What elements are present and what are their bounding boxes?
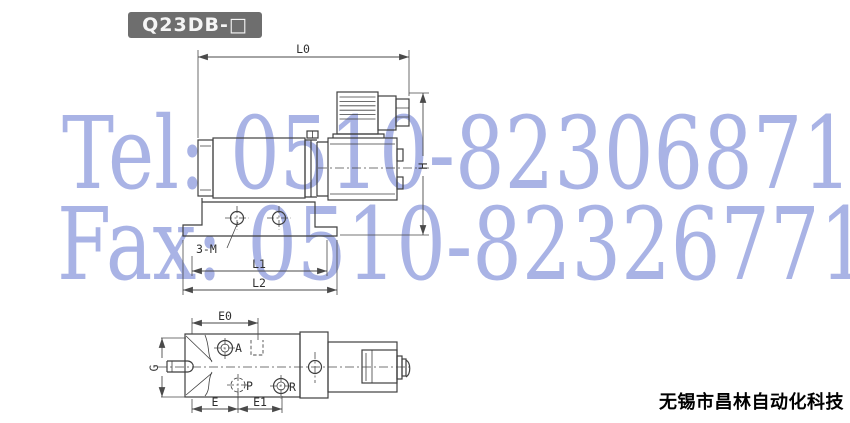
dim-label-l0: L0 [296,42,310,56]
e0-dimension: E0 [192,309,258,340]
mounting-hole-callout: 3-M [196,222,238,256]
e-dimension: E [192,392,238,413]
dim-label-l2: L2 [252,276,266,290]
product-model-label: Q23DB-□ [142,14,248,36]
dim-label-e0: E0 [218,309,232,323]
bottom-view-drawing: A P R [147,309,412,413]
dim-label-h: H [416,162,430,169]
flange [300,332,328,398]
valve-body [198,138,305,198]
screenshot-root: Tel: 0510-82306871 Fax: 0510-82326771 [0,0,850,423]
port-label-p: P [246,379,253,393]
electrical-connector [333,92,409,138]
product-model-badge: Q23DB-□ [128,12,262,38]
e1-dimension: E1 [238,395,282,413]
valve-technical-drawing: 3-M L0 H L1 [0,0,850,423]
dim-label-e1: E1 [253,395,267,409]
body-top-view [185,334,300,397]
mounting-holes [225,206,291,230]
dim-label-e: E [212,395,219,409]
armature-adapter [305,131,328,197]
port-r: R [270,375,296,399]
dim-label-l1: L1 [252,257,266,271]
solenoid-coil [328,138,403,200]
dim-label-g: G [147,364,161,371]
company-name: 无锡市昌林自动化科技 [659,388,844,414]
port-label-r: R [289,380,296,394]
l0-dimension: L0 [198,42,409,138]
mounting-bracket [183,198,337,236]
hidden-port-outline [251,340,263,355]
top-view-drawing: 3-M L0 H L1 [183,42,430,295]
port-a: A [214,338,242,359]
port-label-a: A [235,341,242,355]
manual-override-pin [167,361,193,372]
dim-label-3m: 3-M [196,242,217,256]
